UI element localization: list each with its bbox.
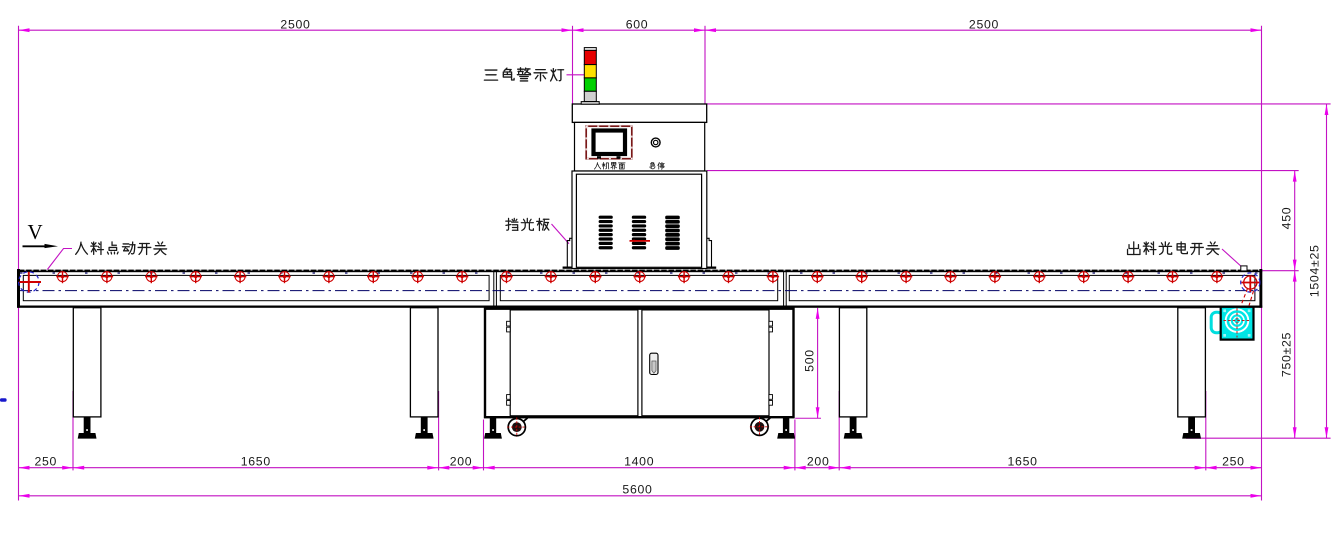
svg-text:750±25: 750±25: [1280, 332, 1294, 377]
svg-text:250: 250: [1222, 454, 1245, 468]
svg-text:450: 450: [1280, 207, 1294, 230]
svg-text:1400: 1400: [624, 454, 654, 468]
svg-text:1650: 1650: [241, 454, 271, 468]
svg-text:200: 200: [807, 454, 830, 468]
svg-text:V: V: [28, 220, 43, 244]
svg-text:200: 200: [450, 454, 473, 468]
svg-text:5600: 5600: [622, 482, 652, 496]
svg-text:1650: 1650: [1008, 454, 1038, 468]
svg-text:2500: 2500: [969, 18, 999, 32]
svg-text:600: 600: [626, 18, 649, 32]
svg-text:250: 250: [34, 454, 57, 468]
svg-text:500: 500: [803, 349, 817, 372]
svg-text:1504±25: 1504±25: [1308, 244, 1322, 297]
svg-text:2500: 2500: [280, 18, 310, 32]
